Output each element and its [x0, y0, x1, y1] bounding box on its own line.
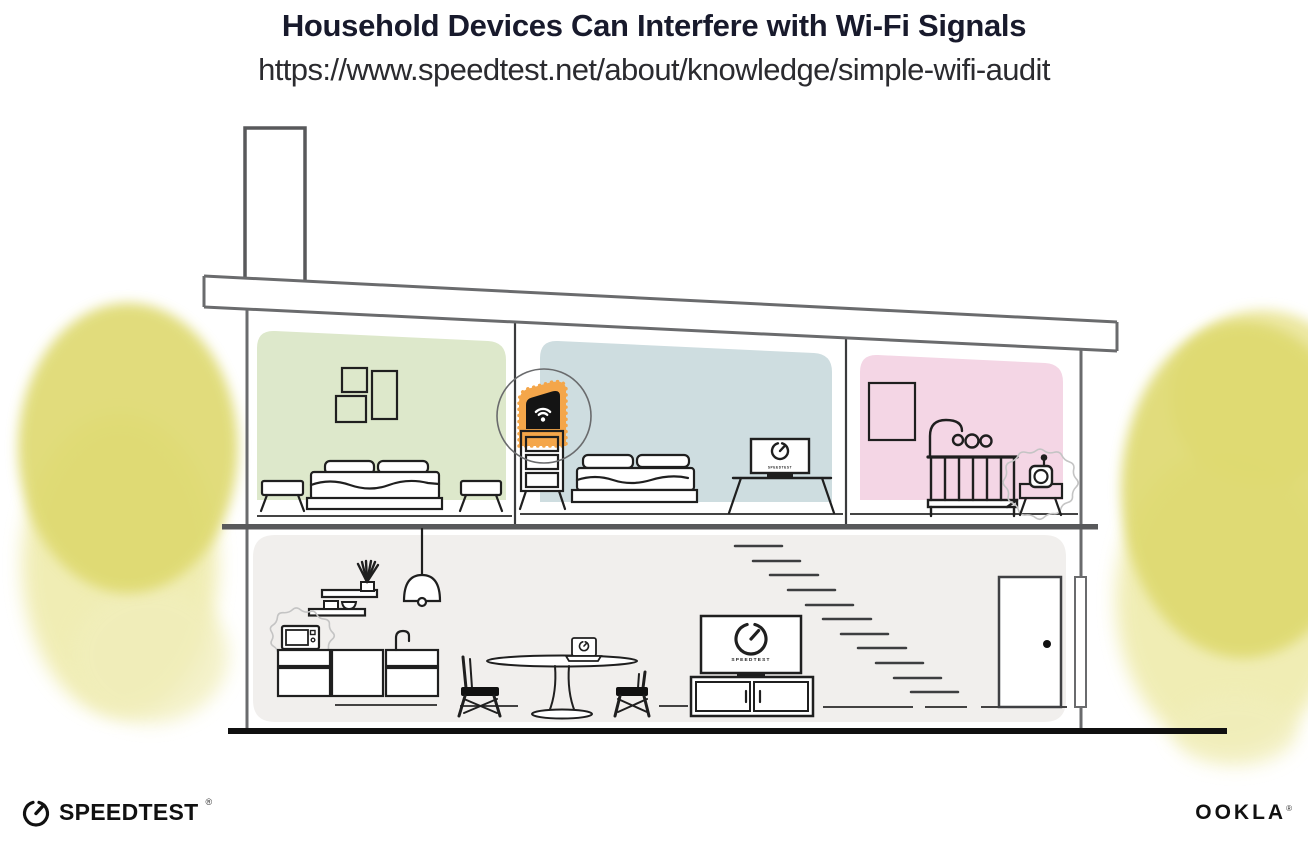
ookla-wordmark: OOKLA: [1195, 801, 1286, 824]
speedtest-logo: SPEEDTEST ®: [20, 797, 212, 829]
microwave-icon: [282, 626, 319, 649]
registered-mark: ®: [205, 797, 212, 807]
svg-text:SPEEDTEST: SPEEDTEST: [768, 466, 792, 470]
ground-line: [228, 728, 1227, 734]
living-room-tv-icon: SPEEDTEST: [701, 616, 801, 677]
front-door: [999, 577, 1061, 707]
svg-text:SPEEDTEST: SPEEDTEST: [731, 657, 770, 663]
foliage-right: [1116, 310, 1308, 766]
house-cross-section-illustration: SPEEDTEST: [0, 0, 1308, 861]
floor-divider: [222, 524, 1098, 530]
bench-icon: [460, 481, 502, 511]
chimney: [245, 128, 305, 284]
bed-icon: [307, 461, 442, 509]
ookla-logo: OOKLA®: [1195, 801, 1292, 825]
media-console-icon: [691, 677, 813, 716]
foliage-left: [18, 303, 238, 723]
bench-icon: [261, 481, 304, 511]
speedtest-gauge-icon: [20, 797, 52, 829]
infographic-canvas: Household Devices Can Interfere with Wi-…: [0, 0, 1308, 861]
speedtest-wordmark: SPEEDTEST: [59, 797, 198, 827]
registered-mark: ®: [1286, 804, 1292, 813]
laptop-icon: [566, 638, 601, 661]
downspout: [1075, 577, 1086, 707]
doorknob: [1043, 640, 1051, 648]
